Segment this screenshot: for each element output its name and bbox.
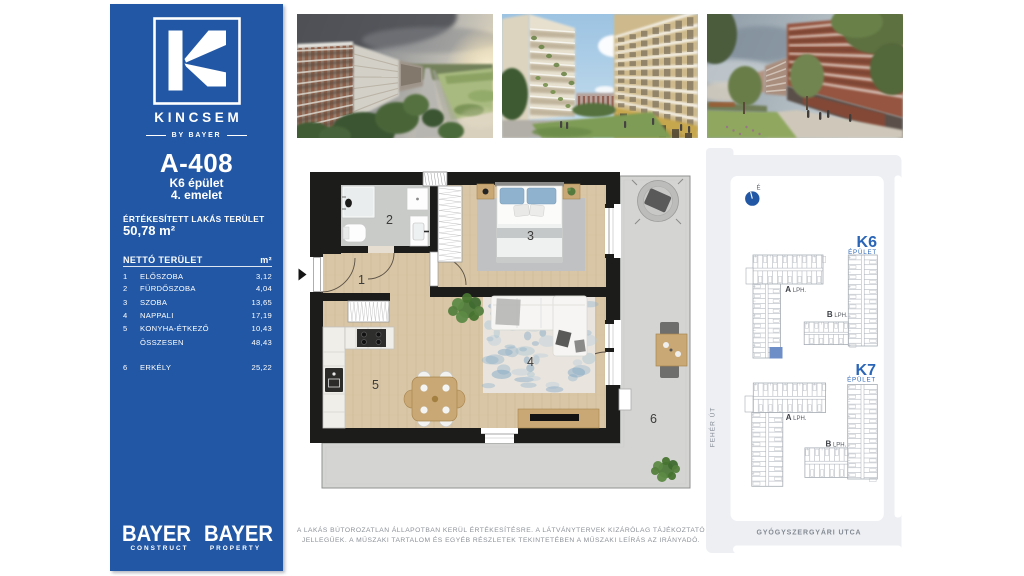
svg-text:5: 5 [372, 378, 379, 392]
svg-text:ÉPÜLET: ÉPÜLET [848, 249, 877, 256]
svg-text:ÉPÜLET: ÉPÜLET [847, 377, 876, 384]
svg-text:FEHÉR ÚT: FEHÉR ÚT [708, 407, 717, 448]
svg-text:3: 3 [527, 229, 534, 243]
svg-text:6: 6 [650, 412, 657, 426]
svg-text:É: É [757, 185, 761, 192]
svg-text:1: 1 [358, 273, 365, 287]
svg-text:GYÓGYSZERGYÁRI UTCA: GYÓGYSZERGYÁRI UTCA [757, 528, 862, 537]
svg-text:4: 4 [527, 355, 534, 369]
svg-text:2: 2 [386, 213, 393, 227]
